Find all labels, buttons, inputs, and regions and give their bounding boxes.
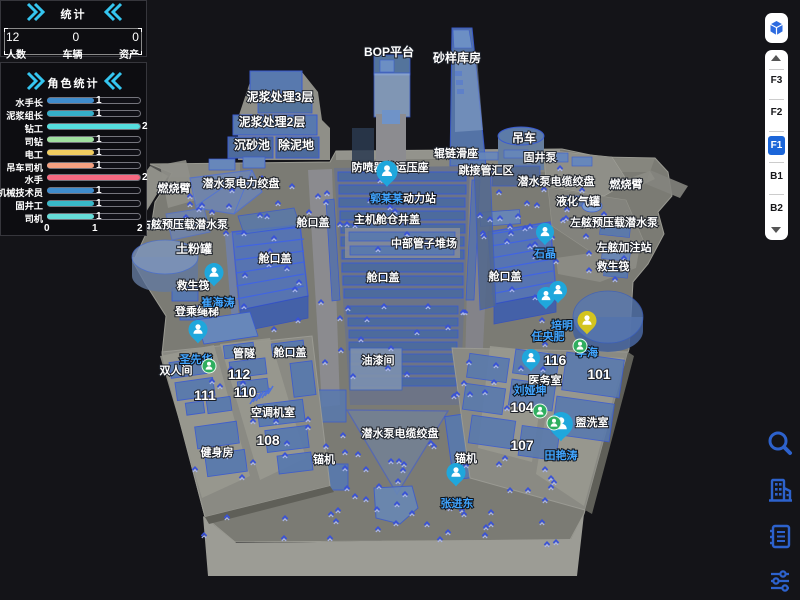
svg-text:燃烧臂: 燃烧臂 <box>609 177 643 191</box>
svg-text:崔海涛: 崔海涛 <box>201 295 235 309</box>
svg-text:舱口盖: 舱口盖 <box>489 269 522 283</box>
svg-text:跳接管汇区: 跳接管汇区 <box>459 163 514 177</box>
svg-text:张进东: 张进东 <box>441 496 474 510</box>
svg-text:油漆间: 油漆间 <box>362 353 395 367</box>
svg-text:救生筏: 救生筏 <box>177 278 210 292</box>
svg-text:104: 104 <box>510 399 534 415</box>
svg-text:BOP平台: BOP平台 <box>364 44 414 59</box>
svg-text:右舷预压载潜水泵: 右舷预压载潜水泵 <box>139 217 228 231</box>
svg-text:中部管子堆场: 中部管子堆场 <box>391 236 457 250</box>
svg-text:泥浆处理3层: 泥浆处理3层 <box>247 89 314 104</box>
svg-text:舱口盖: 舱口盖 <box>274 345 307 359</box>
svg-text:锚机: 锚机 <box>313 452 335 466</box>
svg-text:辊链滑座: 辊链滑座 <box>434 146 478 160</box>
svg-text:舱口盖: 舱口盖 <box>367 270 400 284</box>
svg-text:燃烧臂: 燃烧臂 <box>157 181 191 195</box>
svg-text:土粉罐: 土粉罐 <box>176 241 212 256</box>
svg-text:舱口盖: 舱口盖 <box>297 215 330 229</box>
svg-text:石晶: 石晶 <box>533 247 556 260</box>
svg-text:任央肥: 任央肥 <box>531 329 565 343</box>
svg-text:101: 101 <box>587 366 611 382</box>
svg-text:潜水泵电力绞盘: 潜水泵电力绞盘 <box>203 176 280 190</box>
svg-text:培明: 培明 <box>551 318 573 332</box>
svg-text:111: 111 <box>194 387 216 403</box>
svg-text:110: 110 <box>234 384 257 400</box>
svg-text:管隧: 管隧 <box>233 346 255 360</box>
svg-text:健身房: 健身房 <box>201 445 234 459</box>
svg-text:田艳涛: 田艳涛 <box>545 448 578 462</box>
svg-text:锚机: 锚机 <box>455 451 477 465</box>
svg-text:刘娅坤: 刘娅坤 <box>514 383 547 397</box>
svg-text:舱口盖: 舱口盖 <box>259 251 292 265</box>
svg-text:112: 112 <box>228 366 251 382</box>
svg-text:沉砂池: 沉砂池 <box>234 137 270 152</box>
svg-text:救生筏: 救生筏 <box>597 259 630 273</box>
svg-text:郭某某动力站: 郭某某动力站 <box>370 191 436 205</box>
svg-text:潜水泵电缆绞盘: 潜水泵电缆绞盘 <box>362 426 439 440</box>
svg-text:盥洗室: 盥洗室 <box>576 415 609 429</box>
svg-text:除泥地: 除泥地 <box>278 137 314 152</box>
svg-text:液化气罐: 液化气罐 <box>556 194 600 208</box>
svg-text:108: 108 <box>256 432 280 448</box>
svg-text:116: 116 <box>544 352 567 368</box>
svg-text:固井泵: 固井泵 <box>524 150 557 164</box>
svg-text:泥浆处理2层: 泥浆处理2层 <box>239 114 306 129</box>
svg-text:吊车: 吊车 <box>512 130 536 145</box>
svg-text:左舷加注站: 左舷加注站 <box>596 240 652 254</box>
svg-text:左舷预压载潜水泵: 左舷预压载潜水泵 <box>569 215 658 229</box>
svg-text:空调机室: 空调机室 <box>251 405 295 419</box>
svg-text:潜水泵电缆绞盘: 潜水泵电缆绞盘 <box>518 174 595 188</box>
svg-text:主机舱仓井盖: 主机舱仓井盖 <box>354 212 420 226</box>
svg-text:砂样库房: 砂样库房 <box>432 50 481 65</box>
svg-text:107: 107 <box>510 437 534 453</box>
